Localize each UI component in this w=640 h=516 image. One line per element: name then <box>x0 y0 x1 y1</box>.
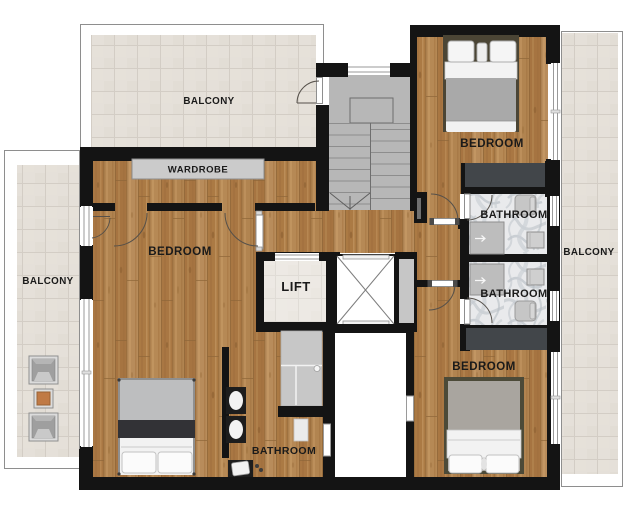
svg-text:BALCONY: BALCONY <box>22 276 73 287</box>
svg-text:BATHROOM: BATHROOM <box>480 288 547 300</box>
svg-text:BEDROOM: BEDROOM <box>460 138 524 150</box>
svg-text:BALCONY: BALCONY <box>563 247 614 258</box>
svg-text:BEDROOM: BEDROOM <box>452 361 516 373</box>
svg-text:WARDROBE: WARDROBE <box>168 165 228 176</box>
svg-text:BATHROOM: BATHROOM <box>480 209 547 221</box>
svg-text:BALCONY: BALCONY <box>183 96 234 107</box>
svg-text:LIFT: LIFT <box>281 279 310 294</box>
svg-text:BEDROOM: BEDROOM <box>148 246 212 258</box>
svg-text:BATHROOM: BATHROOM <box>252 445 316 457</box>
